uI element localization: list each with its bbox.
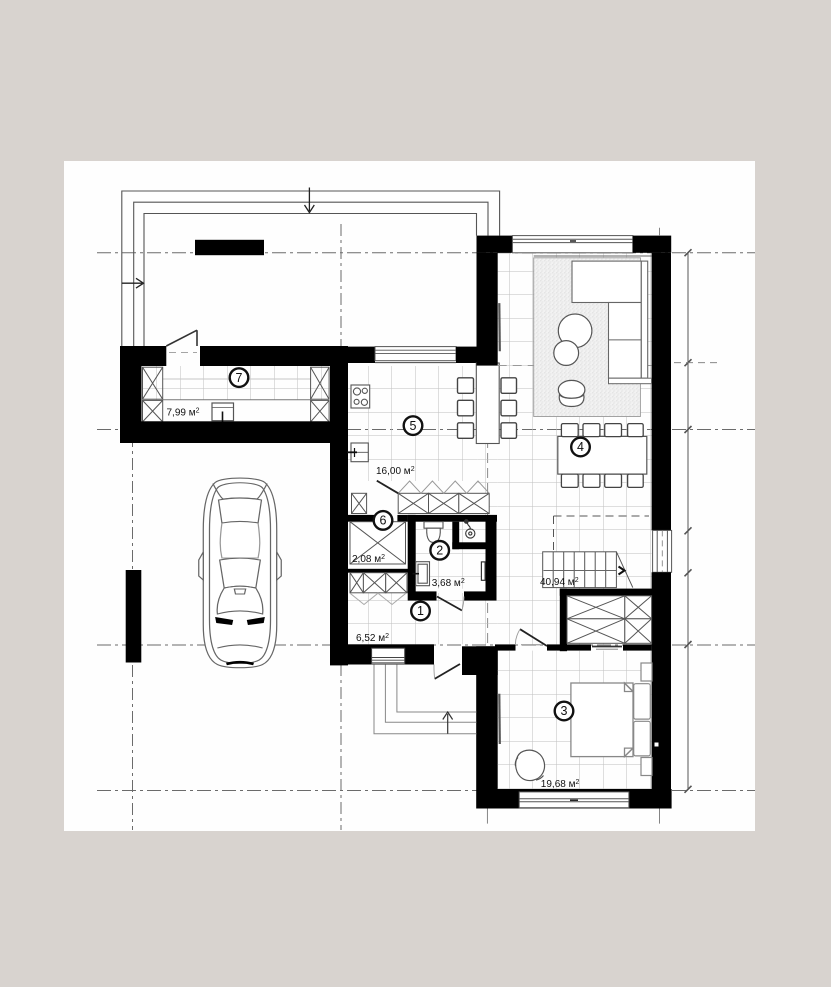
svg-text:7: 7 (236, 371, 243, 385)
svg-text:3: 3 (561, 704, 568, 718)
svg-text:3,68 м2: 3,68 м2 (432, 578, 465, 589)
svg-text:6,52 м2: 6,52 м2 (356, 633, 389, 644)
svg-text:40,94 м2: 40,94 м2 (540, 577, 579, 588)
svg-text:7,99 м2: 7,99 м2 (167, 408, 200, 419)
svg-text:6: 6 (380, 514, 387, 528)
svg-text:4: 4 (577, 440, 584, 454)
svg-text:2,08 м2: 2,08 м2 (352, 554, 385, 565)
svg-text:19,68 м2: 19,68 м2 (541, 779, 580, 790)
svg-text:1: 1 (417, 604, 424, 618)
svg-text:16,00 м2: 16,00 м2 (376, 466, 415, 477)
svg-text:2: 2 (436, 544, 443, 558)
svg-text:5: 5 (410, 419, 417, 433)
